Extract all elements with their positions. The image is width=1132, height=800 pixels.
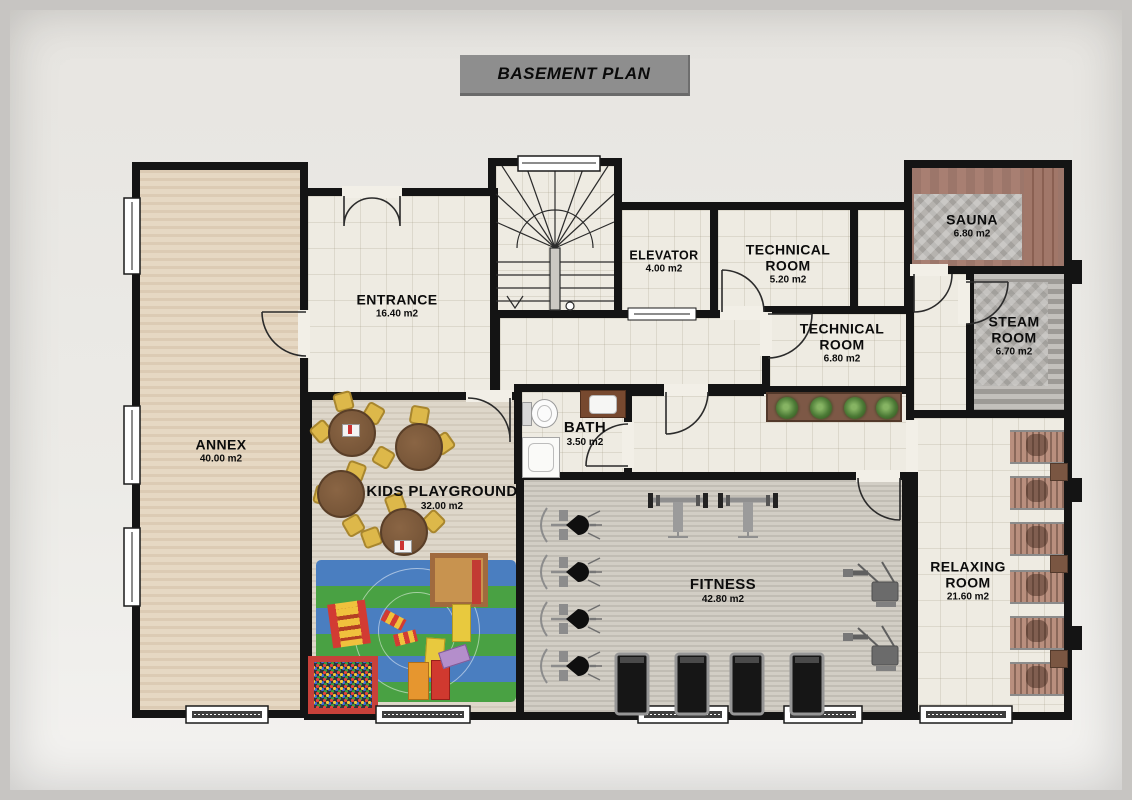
kids-table: [317, 470, 365, 518]
lounger: [1010, 430, 1064, 464]
lounger: [1010, 616, 1064, 650]
plant-icon: [810, 397, 832, 419]
room-staircase: [488, 158, 622, 318]
book-icon: [342, 424, 360, 437]
plan-title: BASEMENT PLAN: [498, 64, 651, 84]
plan-canvas: BASEMENT PLAN: [10, 10, 1122, 790]
planter-box: [766, 392, 902, 422]
book-icon: [394, 540, 412, 553]
label-sauna: SAUNA 6.80 m2: [946, 212, 998, 241]
label-entrance: ENTRANCE 16.40 m2: [357, 292, 438, 321]
playpen: [430, 553, 488, 607]
label-technical-room-1: TECHNICAL ROOM 5.20 m2: [728, 242, 848, 287]
sink-vanity: [580, 390, 626, 418]
lounger: [1010, 476, 1064, 510]
plan-title-box: BASEMENT PLAN: [460, 55, 690, 96]
plant-icon: [876, 397, 898, 419]
shower: [522, 437, 560, 478]
slide: [327, 600, 371, 649]
label-relaxing-room: RELAXING ROOM 21.60 m2: [912, 559, 1024, 604]
ball-pit: [308, 656, 378, 714]
plant-icon: [776, 397, 798, 419]
kids-table: [395, 423, 443, 471]
side-table: [1050, 555, 1068, 573]
lounger: [1010, 522, 1064, 556]
room-corridor-nook: [850, 202, 912, 318]
label-elevator: ELEVATOR 4.00 m2: [629, 249, 698, 276]
label-kids-playground: KIDS PLAYGROUND 32.00 m2: [366, 483, 517, 513]
label-fitness: FITNESS 42.80 m2: [690, 576, 756, 606]
sauna-bench: [1024, 168, 1058, 266]
play-block: [452, 604, 471, 642]
floor-plan-page: BASEMENT PLAN: [0, 0, 1132, 800]
play-block: [408, 662, 429, 700]
label-bath: BATH 3.50 m2: [564, 419, 606, 449]
side-table: [1050, 650, 1068, 668]
label-annex: ANNEX 40.00 m2: [195, 437, 246, 466]
room-vestibule: [906, 266, 974, 418]
side-table: [1050, 463, 1068, 481]
label-technical-room-2: TECHNICAL ROOM 6.80 m2: [777, 321, 907, 366]
plant-icon: [844, 397, 866, 419]
toilet-icon: [531, 399, 558, 428]
label-steam-room: STEAM ROOM 6.70 m2: [969, 314, 1059, 359]
